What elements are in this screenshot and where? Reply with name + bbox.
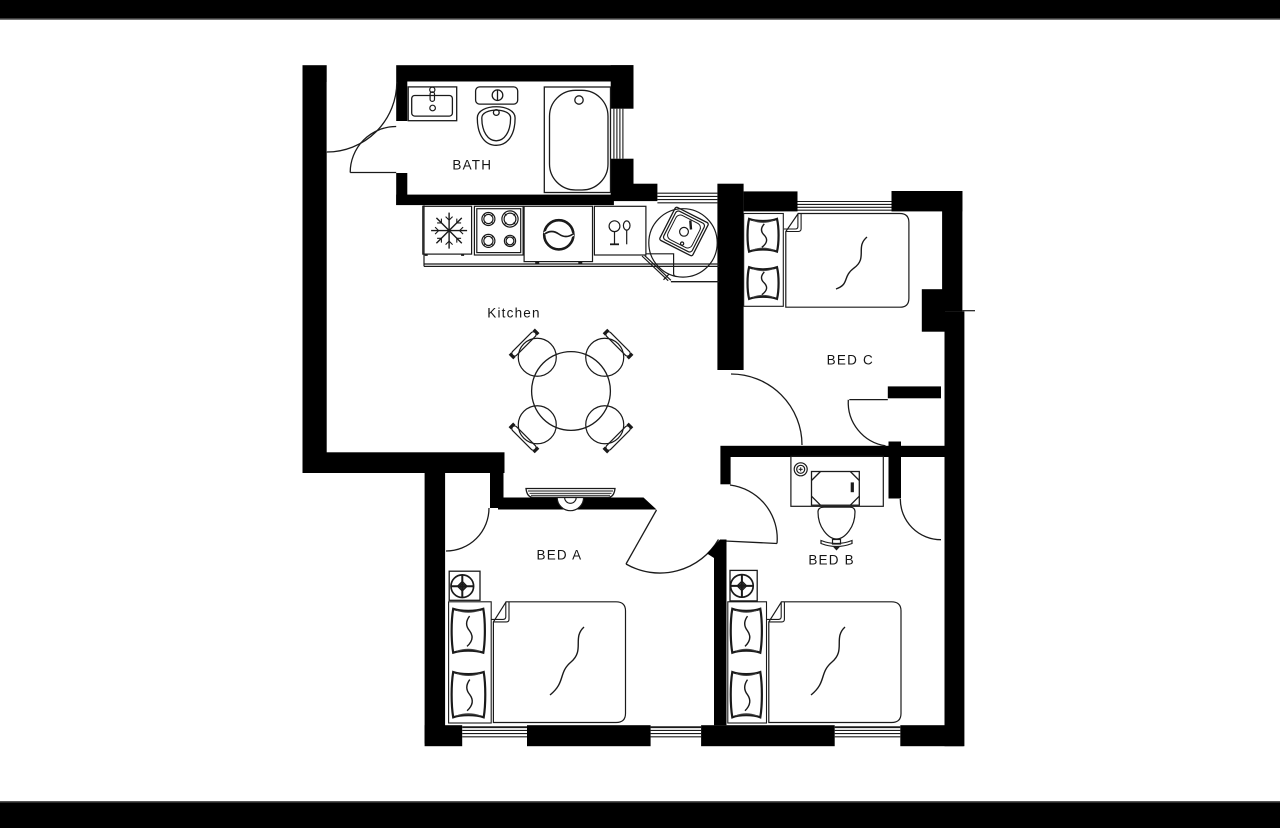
svg-text:BED B: BED B bbox=[808, 553, 855, 568]
svg-text:BED A: BED A bbox=[537, 548, 583, 563]
svg-text:BATH: BATH bbox=[452, 158, 492, 173]
svg-text:Kitchen: Kitchen bbox=[487, 306, 540, 321]
svg-text:BED C: BED C bbox=[827, 353, 874, 368]
